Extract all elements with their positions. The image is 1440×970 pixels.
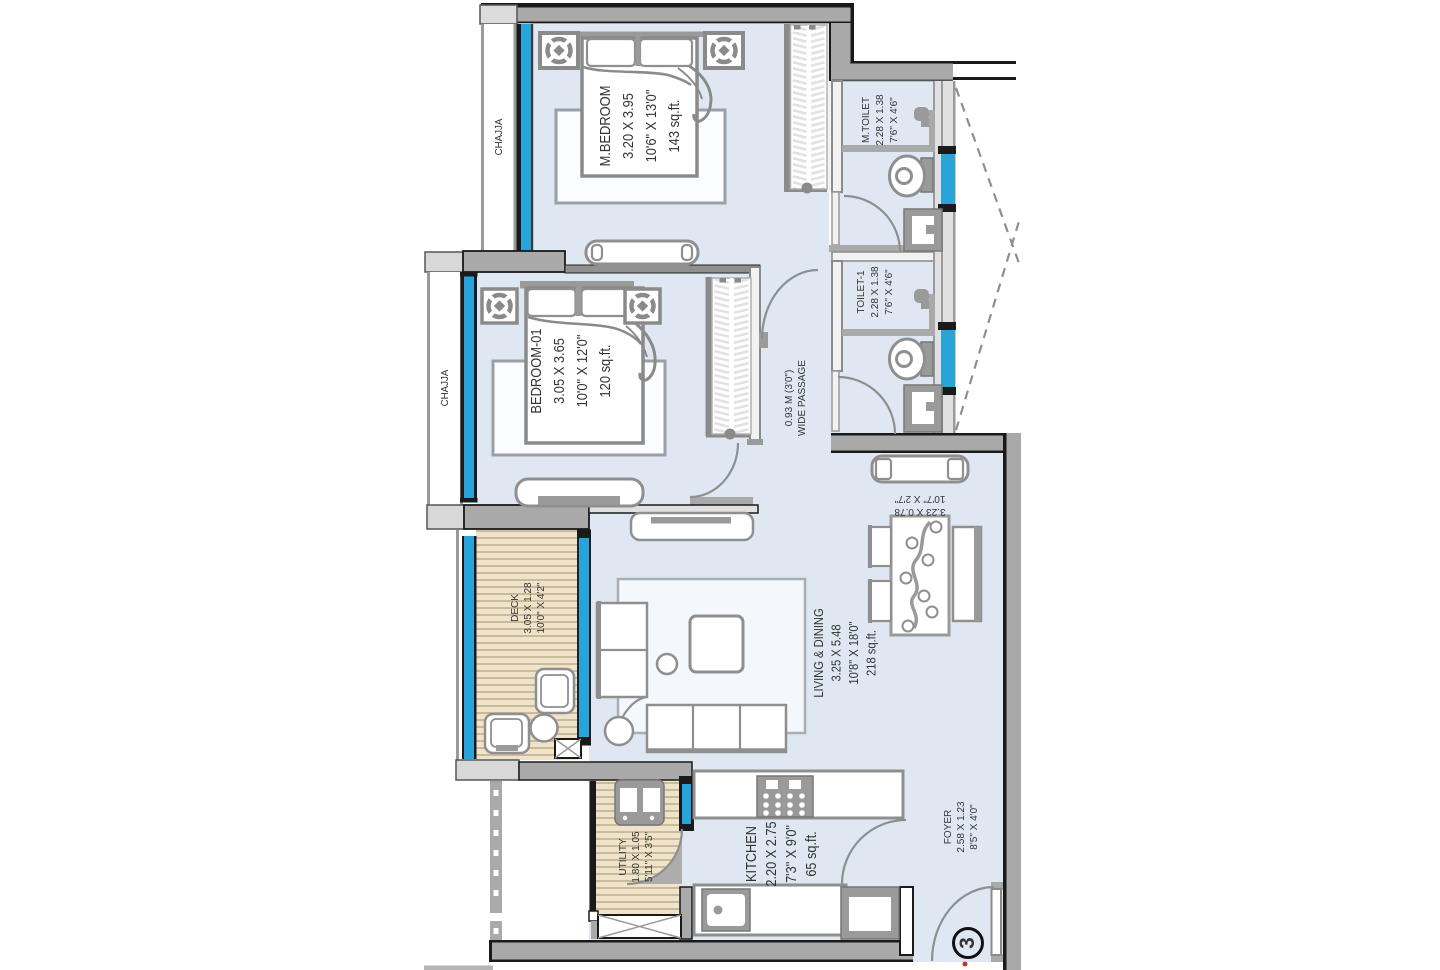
svg-text:2.28 X 1.38: 2.28 X 1.38 — [870, 266, 881, 318]
svg-text:3: 3 — [956, 937, 979, 949]
svg-text:LIVING & DINING: LIVING & DINING — [811, 608, 826, 697]
svg-text:120 sq.ft.: 120 sq.ft. — [596, 345, 613, 398]
svg-text:7'3" X 9'0": 7'3" X 9'0" — [783, 825, 799, 883]
svg-text:FOYER: FOYER — [943, 810, 954, 844]
svg-text:WIDE PASSAGE: WIDE PASSAGE — [797, 360, 808, 436]
svg-text:M.TOILET: M.TOILET — [861, 97, 872, 143]
svg-text:DECK: DECK — [510, 594, 521, 622]
svg-text:143 sq.ft.: 143 sq.ft. — [665, 100, 682, 153]
svg-text:CHAJJA: CHAJJA — [440, 369, 451, 406]
svg-text:218 sq.ft.: 218 sq.ft. — [864, 630, 879, 676]
svg-text:2.20 X 2.75: 2.20 X 2.75 — [763, 821, 779, 887]
svg-text:8'5" X 4'0": 8'5" X 4'0" — [969, 804, 980, 850]
svg-text:0.93 M (3'0"): 0.93 M (3'0") — [784, 370, 795, 427]
svg-text:BEDROOM-01: BEDROOM-01 — [527, 328, 544, 413]
svg-text:10'0" X 12'0": 10'0" X 12'0" — [573, 335, 590, 408]
svg-text:5'11" X 3'5": 5'11" X 3'5" — [644, 831, 655, 882]
svg-text:3.05 X 1.28: 3.05 X 1.28 — [523, 582, 534, 634]
svg-text:TOILET-1: TOILET-1 — [856, 270, 867, 314]
svg-text:UTILITY: UTILITY — [618, 838, 629, 876]
svg-text:7'6" X 4'6": 7'6" X 4'6" — [884, 269, 895, 315]
svg-text:10'6" X 13'0": 10'6" X 13'0" — [642, 90, 659, 163]
svg-text:10'8" X 18'0": 10'8" X 18'0" — [846, 621, 861, 684]
svg-text:CHAJJA: CHAJJA — [494, 118, 505, 155]
svg-text:7'6" X 4'6": 7'6" X 4'6" — [889, 97, 900, 143]
svg-text:3.25 X 5.48: 3.25 X 5.48 — [829, 624, 844, 681]
svg-text:M.BEDROOM: M.BEDROOM — [596, 86, 613, 167]
svg-text:2.28 X 1.38: 2.28 X 1.38 — [875, 94, 886, 146]
svg-text:KITCHEN: KITCHEN — [743, 826, 759, 882]
svg-text:3.23 X 0.78: 3.23 X 0.78 — [894, 506, 946, 517]
svg-text:3.05 X 3.65: 3.05 X 3.65 — [550, 338, 567, 404]
svg-text:1.80 X 1.05: 1.80 X 1.05 — [631, 831, 642, 883]
svg-text:10'7" X 2'7": 10'7" X 2'7" — [894, 493, 945, 504]
svg-text:3.20 X 3.95: 3.20 X 3.95 — [619, 93, 636, 159]
svg-text:10'0" X 4'2": 10'0" X 4'2" — [536, 582, 547, 633]
svg-text:2.58 X 1.23: 2.58 X 1.23 — [956, 801, 967, 853]
svg-text:65 sq.ft.: 65 sq.ft. — [803, 831, 819, 876]
